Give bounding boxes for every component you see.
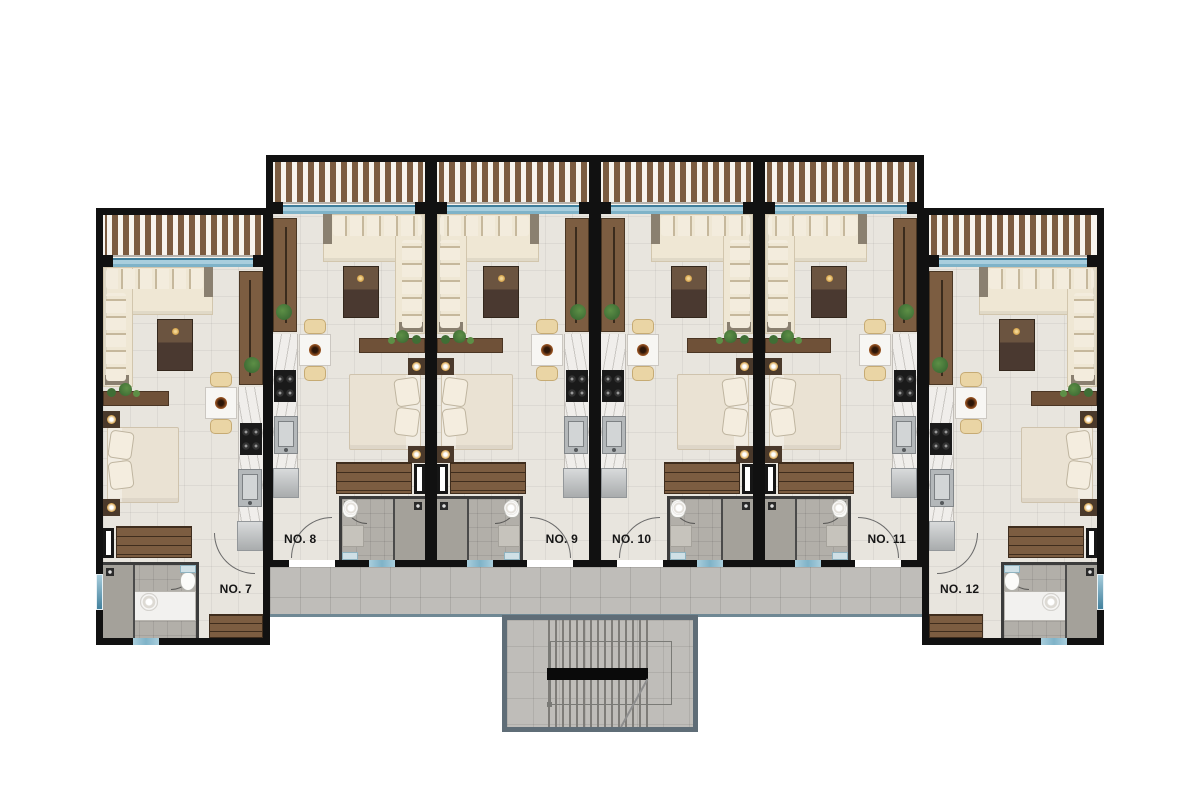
bed-pillow: [441, 407, 468, 438]
stove-icon: [894, 370, 916, 402]
sofa-pillows: [106, 269, 203, 289]
unit-no-10: NO. 10: [594, 155, 760, 567]
entry-door-opening: [289, 560, 335, 567]
bathroom-window: [133, 638, 159, 645]
plant-icon: [932, 357, 948, 373]
dining-table: [299, 334, 331, 366]
sofa-pillows: [106, 293, 126, 381]
sliding-glass-door: [113, 258, 253, 267]
service-duct: [765, 464, 776, 494]
sliding-glass-door: [447, 205, 579, 214]
plant-icon: [396, 330, 409, 343]
unit-interior: [273, 162, 425, 560]
wall-stub: [743, 202, 753, 214]
dining-chair: [960, 372, 982, 387]
unit-no-12: NO. 12: [922, 208, 1104, 645]
wall-shelf: [1031, 391, 1097, 406]
plant-icon: [276, 304, 292, 320]
plant-icon: [724, 330, 737, 343]
wall-shelf: [437, 338, 503, 353]
stairwell: [502, 615, 698, 732]
sliding-glass-door: [283, 205, 415, 214]
unit-interior: [103, 215, 263, 638]
wall-stub: [929, 255, 939, 267]
dining-table: [531, 334, 563, 366]
fridge: [601, 468, 627, 498]
stove-icon: [602, 370, 624, 402]
dining-chair: [960, 419, 982, 434]
unit-label: NO. 8: [284, 532, 316, 546]
corridor: [270, 567, 922, 617]
kitchen-sink-icon: [892, 416, 916, 454]
sofa-pillows: [402, 240, 422, 328]
shower-area: [1065, 565, 1097, 638]
bed-pillow: [393, 376, 421, 407]
bathroom: [437, 496, 523, 560]
fridge: [273, 468, 299, 498]
nightstand: [103, 499, 120, 516]
bed-pillow: [721, 376, 749, 407]
unit-interior: [765, 162, 917, 560]
shower-area: [721, 499, 753, 560]
kitchen-sink-icon: [602, 416, 626, 454]
balcony-pergola-slats: [105, 215, 261, 257]
dresser-wardrobe: [664, 462, 740, 494]
wall-stub: [907, 202, 917, 214]
toilet-icon: [1004, 565, 1020, 591]
sofa-armrest: [530, 214, 539, 244]
tv-console: [811, 266, 847, 318]
tv-console: [483, 266, 519, 318]
dining-table: [627, 334, 659, 366]
service-duct: [742, 464, 753, 494]
balcony-pergola-slats: [275, 162, 423, 204]
bathroom: [765, 496, 851, 560]
nightstand: [1080, 499, 1097, 516]
dining-chair: [632, 366, 654, 381]
dining-chair: [304, 366, 326, 381]
unit-label: NO. 12: [940, 582, 979, 596]
entry-door-opening: [617, 560, 663, 567]
dining-chair: [304, 319, 326, 334]
unit-no-7: NO. 7: [96, 208, 270, 645]
unit-no-9: NO. 9: [430, 155, 596, 567]
unit-label: NO. 7: [220, 582, 252, 596]
balcony: [437, 162, 589, 214]
balcony: [273, 162, 425, 214]
balcony: [103, 215, 263, 267]
side-window: [96, 574, 103, 610]
tv-console: [999, 319, 1035, 371]
wall-stub: [1087, 255, 1097, 267]
entry-door-opening: [527, 560, 573, 567]
plant-icon: [781, 330, 794, 343]
kitchen-sink-icon: [274, 416, 298, 454]
dining-chair: [536, 366, 558, 381]
balcony: [929, 215, 1097, 267]
shower-area: [393, 499, 425, 560]
shower-area: [437, 499, 469, 560]
wall-stub: [253, 255, 263, 267]
nightstand: [103, 411, 120, 428]
stove-icon: [274, 370, 296, 402]
wall-stub: [273, 202, 283, 214]
balcony: [601, 162, 753, 214]
tv-console: [671, 266, 707, 318]
sofa-armrest: [651, 214, 660, 244]
stove-icon: [240, 423, 262, 455]
dining-chair: [210, 419, 232, 434]
service-duct: [103, 528, 114, 558]
dining-table: [859, 334, 891, 366]
wall-stub: [765, 202, 775, 214]
stove-icon: [930, 423, 952, 455]
sofa-pillows: [440, 216, 529, 236]
bed-pillow: [107, 429, 135, 460]
bathroom-window: [369, 560, 395, 567]
bed-pillow: [107, 460, 134, 491]
dresser-wardrobe: [1008, 526, 1084, 558]
dining-chair: [210, 372, 232, 387]
dresser-wardrobe: [450, 462, 526, 494]
unit-no-8: NO. 8: [266, 155, 432, 567]
plant-icon: [119, 383, 132, 396]
kitchen-sink-icon: [930, 469, 954, 507]
fridge: [563, 468, 589, 498]
sofa-pillows: [768, 240, 788, 328]
nightstand: [408, 358, 425, 375]
bathroom-sink-icon: [498, 525, 520, 547]
tv-console: [343, 266, 379, 318]
nightstand: [408, 446, 425, 463]
wall-stub: [415, 202, 425, 214]
shower-area: [103, 565, 135, 638]
sofa-pillows: [333, 216, 422, 236]
plant-icon: [898, 304, 914, 320]
side-window: [1097, 574, 1104, 610]
sofa-pillows: [730, 240, 750, 328]
balcony-pergola-slats: [603, 162, 751, 204]
bathroom-window: [795, 560, 821, 567]
sofa-pillows: [440, 240, 460, 328]
balcony-pergola-slats: [931, 215, 1095, 257]
sofa-pillows: [1074, 293, 1094, 381]
balcony: [765, 162, 917, 214]
sofa-armrest: [979, 267, 988, 297]
bathroom: [1001, 562, 1097, 638]
wall-shelf: [687, 338, 753, 353]
sliding-glass-door: [611, 205, 743, 214]
bathroom-window: [697, 560, 723, 567]
unit-interior: [929, 215, 1097, 638]
plant-icon: [570, 304, 586, 320]
sofa-armrest: [323, 214, 332, 244]
canvas: NO. 7: [0, 0, 1200, 800]
service-duct: [414, 464, 425, 494]
sliding-glass-door: [939, 258, 1087, 267]
bathroom-window: [467, 560, 493, 567]
bathroom: [339, 496, 425, 560]
dining-chair: [536, 319, 558, 334]
wall-shelf: [103, 391, 169, 406]
dresser-wardrobe: [336, 462, 412, 494]
unit-no-11: NO. 11: [758, 155, 924, 567]
wall-stub: [601, 202, 611, 214]
unit-interior: [437, 162, 589, 560]
bed-pillow: [769, 407, 796, 438]
bathroom: [103, 562, 199, 638]
wall-stub: [437, 202, 447, 214]
entry-dresser: [929, 614, 983, 638]
nightstand: [736, 358, 753, 375]
unit-label: NO. 9: [546, 532, 578, 546]
sofa-armrest: [858, 214, 867, 244]
service-duct: [437, 464, 448, 494]
bathroom: [667, 496, 753, 560]
plant-icon: [453, 330, 466, 343]
dining-table: [955, 387, 987, 419]
entry-dresser: [209, 614, 263, 638]
stair-direction-dot: [547, 702, 552, 707]
plant-icon: [1068, 383, 1081, 396]
bed-pillow: [1065, 429, 1093, 460]
nightstand: [437, 446, 454, 463]
nightstand: [1080, 411, 1097, 428]
bed-pillow: [393, 407, 420, 438]
shower-area: [765, 499, 797, 560]
floor-plan: NO. 7: [0, 0, 1200, 800]
dresser-wardrobe: [778, 462, 854, 494]
nightstand: [437, 358, 454, 375]
bathroom-window: [1041, 638, 1067, 645]
kitchen-sink-icon: [564, 416, 588, 454]
kitchen-sink-icon: [238, 469, 262, 507]
wall-shelf: [359, 338, 425, 353]
balcony-pergola-slats: [767, 162, 915, 204]
entry-door-opening: [855, 560, 901, 567]
wall-shelf: [765, 338, 831, 353]
plant-icon: [604, 304, 620, 320]
unit-label: NO. 11: [867, 532, 906, 546]
dining-chair: [632, 319, 654, 334]
nightstand: [765, 446, 782, 463]
unit-interior: [601, 162, 753, 560]
bed-pillow: [1065, 460, 1092, 491]
sofa-pillows: [768, 216, 857, 236]
bed-pillow: [721, 407, 748, 438]
nightstand: [736, 446, 753, 463]
dining-table: [205, 387, 237, 419]
sofa-pillows: [661, 216, 750, 236]
bathroom-sink-icon: [342, 525, 364, 547]
sofa-armrest: [204, 267, 213, 297]
tv-console: [157, 319, 193, 371]
balcony-pergola-slats: [439, 162, 587, 204]
wall-stub: [103, 255, 113, 267]
bathroom-sink-icon: [670, 525, 692, 547]
bed-pillow: [441, 376, 469, 407]
fridge: [891, 468, 917, 498]
stair-rail: [547, 668, 648, 680]
unit-label: NO. 10: [612, 532, 651, 546]
sofa-pillows: [989, 269, 1094, 289]
bathroom-sink-icon: [826, 525, 848, 547]
stair-direction-arrow: [548, 642, 550, 668]
nightstand: [765, 358, 782, 375]
sliding-glass-door: [775, 205, 907, 214]
dresser-wardrobe: [116, 526, 192, 558]
bed-pillow: [769, 376, 797, 407]
dining-chair: [864, 319, 886, 334]
dining-chair: [864, 366, 886, 381]
toilet-icon: [180, 565, 196, 591]
stove-icon: [566, 370, 588, 402]
wall-stub: [579, 202, 589, 214]
plant-icon: [244, 357, 260, 373]
service-duct: [1086, 528, 1097, 558]
